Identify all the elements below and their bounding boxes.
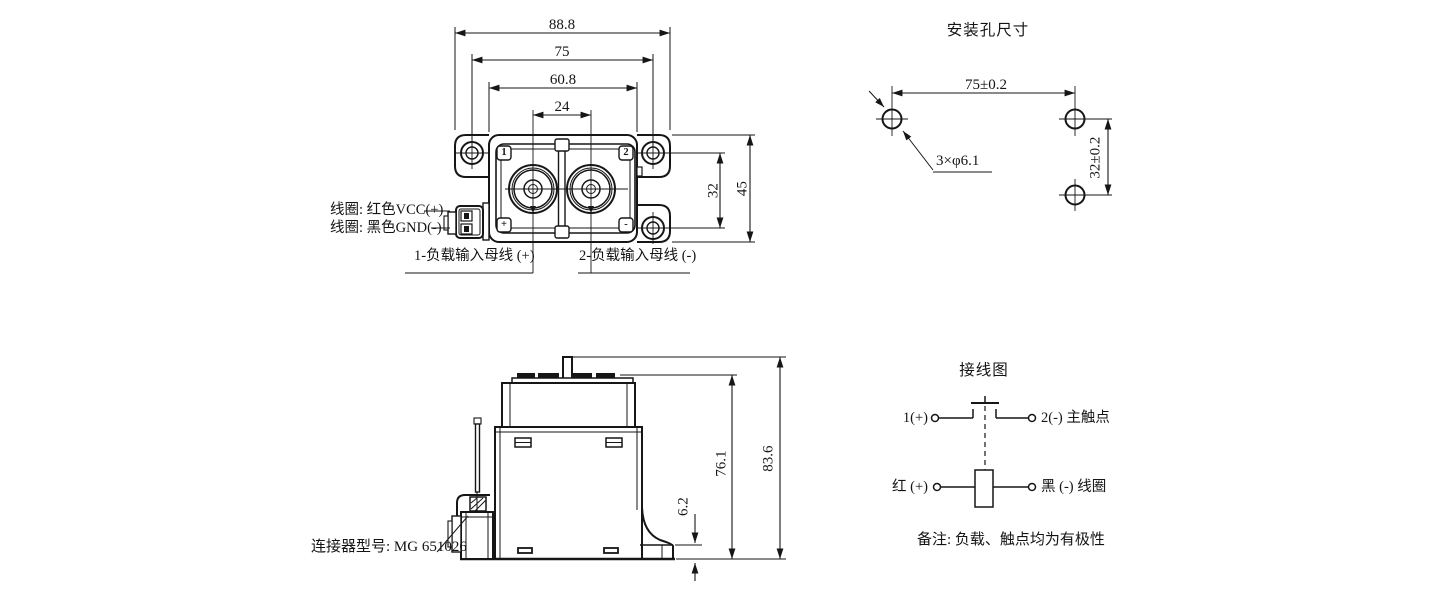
dim-overall-width: 88.8 — [522, 17, 602, 34]
terminal-marker-2: 2 — [619, 146, 633, 160]
side-view-drawing — [437, 357, 786, 581]
busbar-positive-label: 1-负载输入母线 (+) — [414, 248, 535, 265]
mounting-hole-view-drawing — [869, 86, 1112, 211]
plan-view-drawing — [405, 27, 755, 273]
dim-body-height-side: 76.1 — [713, 442, 730, 486]
drawing-linework — [0, 0, 1440, 600]
dim-foot-height: 6.2 — [675, 489, 692, 525]
wiring-diagram-drawing — [932, 396, 1036, 507]
dim-body-width: 60.8 — [523, 72, 603, 89]
dim-terminal-pitch: 24 — [522, 99, 602, 116]
contact-positive-label: 1(+) — [894, 410, 928, 427]
terminal-marker-1: 1 — [497, 146, 511, 160]
coil-negative-label: 黑 (-) 线圈 — [1041, 479, 1106, 496]
terminal-marker-plus: + — [497, 218, 511, 232]
busbar-negative-label: 2-负载输入母线 (-) — [579, 248, 696, 265]
engineering-drawing-sheet: 88.8 75 60.8 24 32 45 线圈: 红色VCC(+) 线圈: 黑… — [0, 0, 1440, 600]
dim-mount-vspan-tol: 32±0.2 — [1087, 126, 1104, 190]
mounting-view-title: 安装孔尺寸 — [928, 22, 1048, 40]
dim-body-height: 45 — [734, 171, 751, 207]
coil-black-label: 线圈: 黑色GND(-) — [330, 220, 442, 237]
dim-mount-span-tol: 75±0.2 — [946, 77, 1026, 94]
coil-positive-label: 红 (+) — [892, 479, 928, 496]
dim-mount-span: 75 — [522, 44, 602, 61]
dim-mount-vspan: 32 — [705, 173, 722, 209]
hole-diameter-callout: 3×φ6.1 — [936, 153, 979, 170]
terminal-marker-minus: - — [619, 218, 633, 232]
wiring-diagram-title: 接线图 — [944, 362, 1024, 380]
dim-overall-height-side: 83.6 — [760, 437, 777, 481]
polarity-note: 备注: 负载、触点均为有极性 — [917, 532, 1105, 549]
connector-model-label: 连接器型号: MG 651026 — [311, 539, 467, 556]
contact-negative-label: 2(-) 主触点 — [1041, 410, 1110, 427]
coil-red-label: 线圈: 红色VCC(+) — [330, 202, 443, 219]
